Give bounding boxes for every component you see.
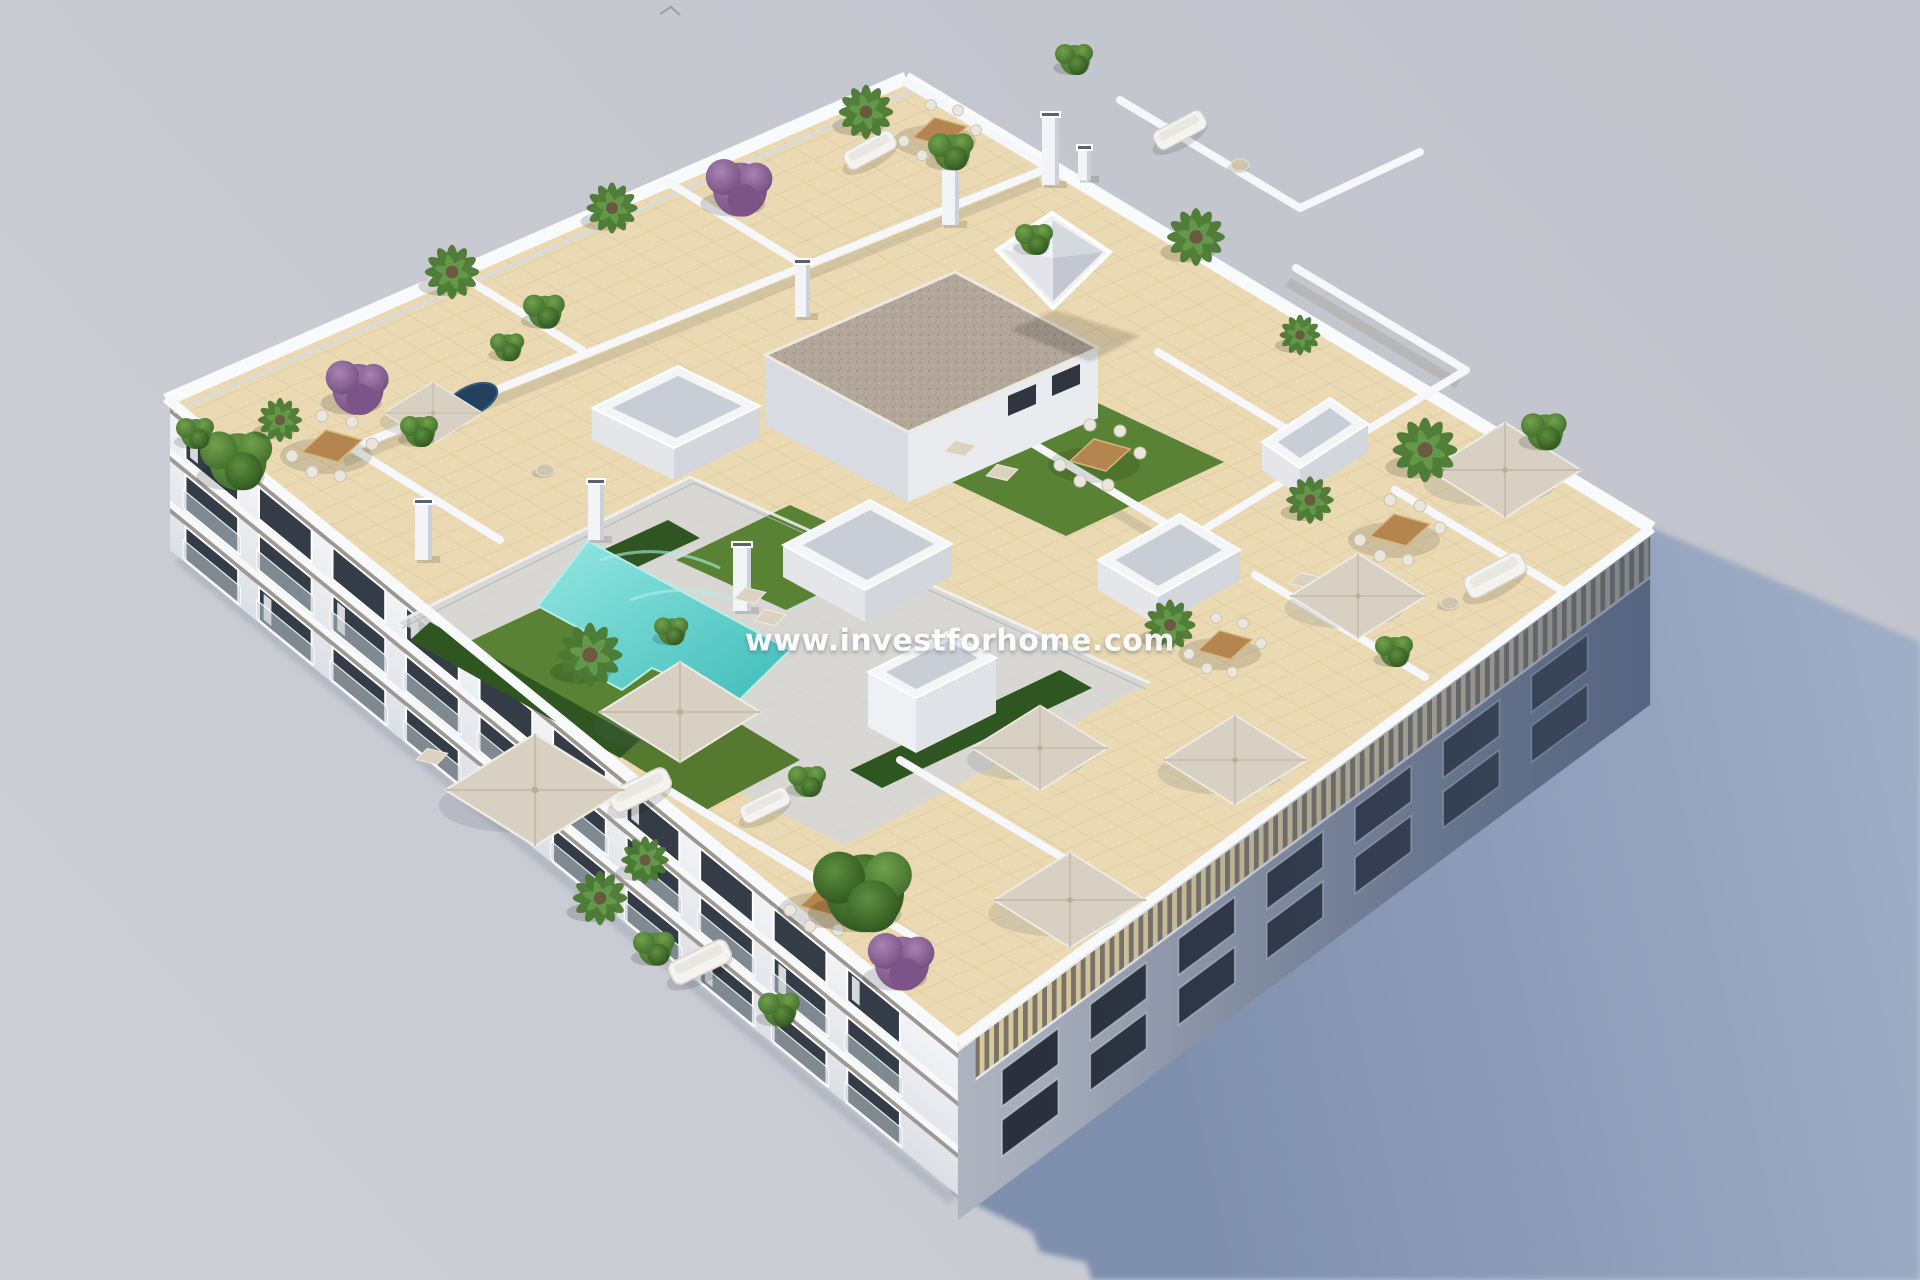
plant — [1053, 44, 1093, 75]
chimney-vent — [1042, 113, 1059, 116]
plant — [1373, 636, 1413, 667]
chimney-vent — [415, 500, 432, 503]
chimney-side — [600, 482, 604, 540]
architectural-render: www.investforhome.com — [0, 0, 1920, 1280]
chimney-vent — [795, 260, 810, 263]
chimney-vent — [588, 480, 604, 483]
plant — [1519, 413, 1567, 450]
plant — [521, 295, 565, 329]
purple-plant — [862, 933, 934, 991]
purple-plant — [700, 159, 772, 217]
plant — [652, 617, 688, 645]
plant — [631, 932, 675, 966]
chimney-side — [806, 262, 810, 317]
plant — [488, 333, 524, 361]
chimney-side — [1087, 148, 1091, 180]
plant — [1013, 224, 1053, 255]
render-scene — [0, 0, 1920, 1280]
plant — [398, 416, 438, 447]
plant — [756, 993, 800, 1027]
chimney-vent — [1078, 146, 1091, 149]
chimney-vent — [733, 543, 751, 546]
tree — [808, 852, 912, 933]
chimney-side — [428, 502, 432, 560]
plant — [786, 766, 826, 797]
purple-plant — [321, 361, 389, 415]
plant — [926, 133, 974, 170]
chimney-side — [1055, 115, 1059, 185]
plant — [174, 418, 214, 449]
